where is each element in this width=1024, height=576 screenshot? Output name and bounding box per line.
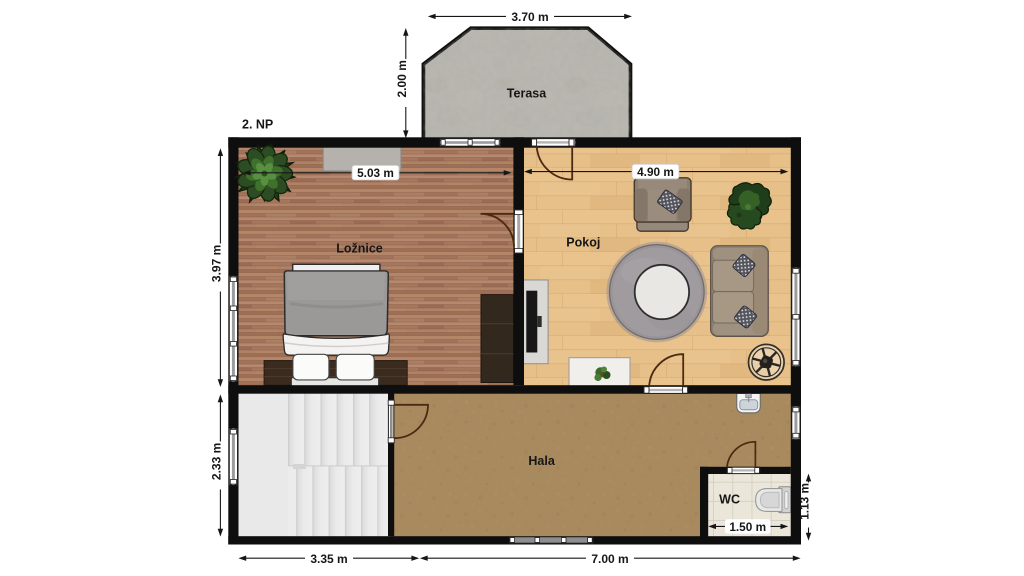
svg-text:4.90 m: 4.90 m: [637, 165, 674, 179]
svg-text:1.13 m: 1.13 m: [798, 483, 812, 520]
svg-text:3.97 m: 3.97 m: [209, 245, 223, 282]
svg-text:7.00 m: 7.00 m: [591, 552, 628, 566]
svg-text:Pokoj: Pokoj: [566, 235, 600, 249]
svg-text:3.70 m: 3.70 m: [511, 10, 548, 24]
svg-text:Hala: Hala: [528, 454, 555, 468]
svg-text:3.35 m: 3.35 m: [310, 552, 347, 566]
svg-text:2. NP: 2. NP: [242, 118, 273, 132]
svg-text:2.00 m: 2.00 m: [395, 60, 409, 97]
svg-text:Terasa: Terasa: [507, 86, 547, 100]
svg-text:1.50 m: 1.50 m: [729, 520, 766, 534]
svg-text:Ložnice: Ložnice: [336, 241, 383, 255]
svg-text:5.03 m: 5.03 m: [357, 166, 394, 180]
svg-text:2.33 m: 2.33 m: [209, 443, 223, 480]
svg-text:WC: WC: [719, 493, 740, 507]
